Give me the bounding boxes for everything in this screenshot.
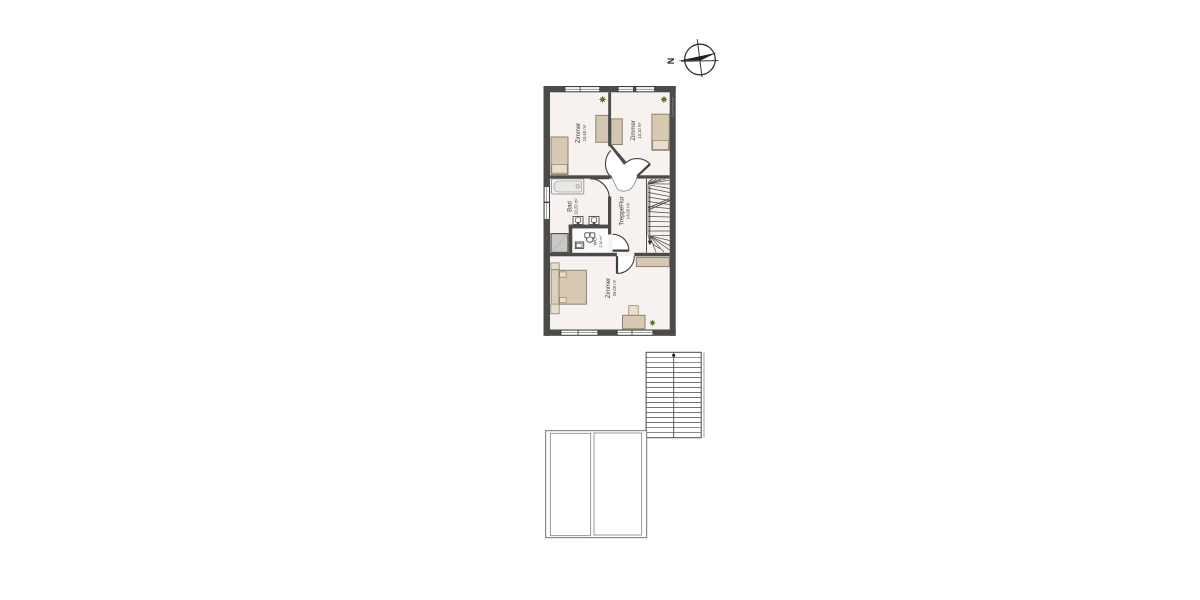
svg-text:15,60 m²: 15,60 m² [582, 124, 587, 141]
svg-text:WC: WC [593, 237, 599, 246]
svg-text:13,10 m²: 13,10 m² [637, 122, 642, 139]
svg-text:N: N [666, 58, 676, 65]
svg-text:10,20 m²: 10,20 m² [573, 198, 578, 215]
svg-text:2,30 m²: 2,30 m² [599, 235, 603, 248]
svg-text:RoomSketcher: RoomSketcher [670, 97, 674, 117]
svg-text:26,00 m²: 26,00 m² [612, 279, 617, 296]
svg-text:14,00 m²: 14,00 m² [626, 202, 631, 219]
